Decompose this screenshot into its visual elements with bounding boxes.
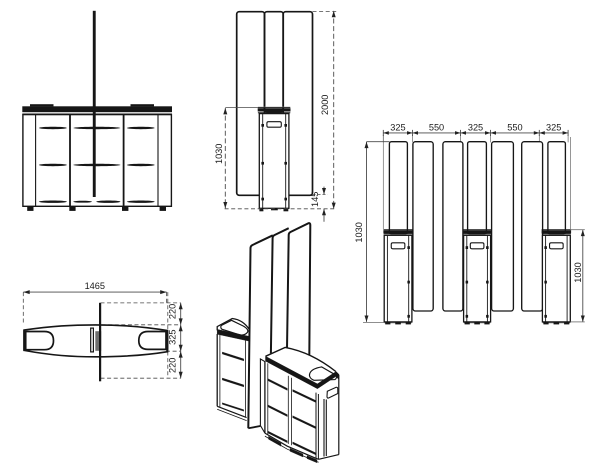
svg-text:220: 220: [168, 358, 178, 373]
svg-text:325: 325: [390, 122, 405, 132]
svg-text:1030: 1030: [573, 262, 583, 282]
svg-text:2000: 2000: [320, 95, 330, 115]
svg-text:1465: 1465: [85, 281, 105, 291]
svg-text:550: 550: [507, 122, 522, 132]
svg-text:550: 550: [429, 122, 444, 132]
svg-text:325: 325: [546, 122, 561, 132]
svg-text:1030: 1030: [214, 144, 224, 164]
svg-text:325: 325: [468, 122, 483, 132]
svg-text:220: 220: [168, 304, 178, 319]
svg-text:325: 325: [168, 330, 178, 345]
svg-text:1030: 1030: [354, 222, 364, 242]
svg-text:145: 145: [310, 192, 320, 207]
